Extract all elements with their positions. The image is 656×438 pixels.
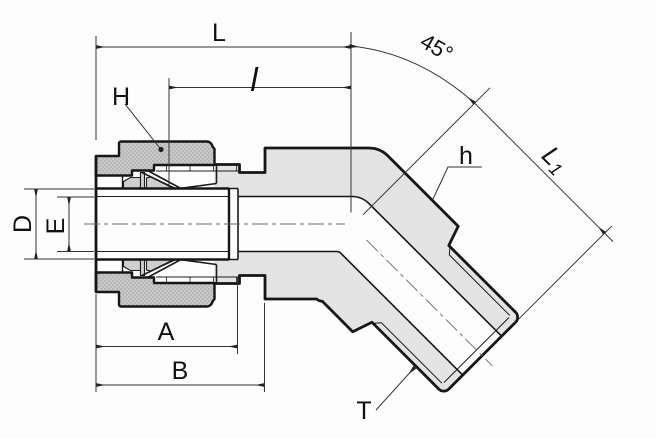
- svg-text:B: B: [172, 357, 189, 385]
- svg-text:H: H: [112, 83, 130, 111]
- svg-text:E: E: [42, 218, 70, 235]
- svg-text:T: T: [356, 397, 371, 425]
- svg-text:D: D: [9, 215, 37, 233]
- svg-text:h: h: [459, 142, 473, 170]
- svg-text:A: A: [158, 318, 175, 346]
- svg-text:L: L: [212, 19, 226, 47]
